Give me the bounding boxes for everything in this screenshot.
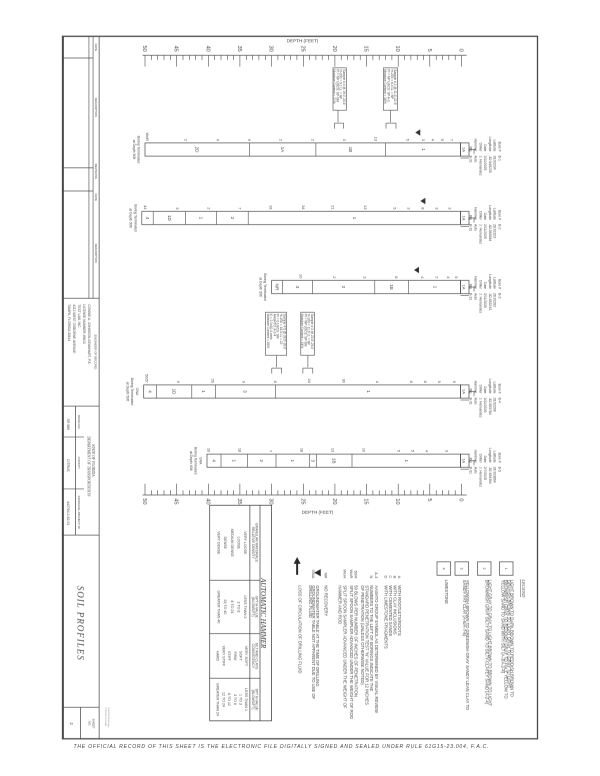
svg-text:3: 3 — [295, 286, 300, 289]
svg-text:DEPTH (FEET): DEPTH (FEET) — [302, 510, 334, 515]
svg-text:WoR: WoR — [349, 569, 354, 578]
svg-text:30: 30 — [268, 46, 274, 52]
svg-text:REVISIONS: REVISIONS — [94, 164, 98, 179]
svg-text:Longitude: Longitude — [488, 137, 492, 152]
svg-text:at Depth 50ft: at Depth 50ft — [126, 382, 130, 401]
svg-text:SOIL PROFILES: SOIL PROFILES — [76, 586, 86, 661]
svg-text:Date: Date — [483, 456, 487, 463]
svg-text:DRILLING FLUID: DRILLING FLUID — [308, 585, 313, 618]
svg-text:3: 3 — [460, 568, 464, 570]
svg-text:Hammer: Hammer — [474, 207, 478, 221]
svg-text:Longitude: Longitude — [488, 205, 492, 220]
svg-text:1D: 1D — [172, 389, 177, 396]
svg-text:28.92298: 28.92298 — [493, 398, 497, 412]
svg-text:4: 4 — [211, 459, 216, 462]
svg-text:DEPARTMENT OF TRANSPORTATION: DEPARTMENT OF TRANSPORTATION — [87, 435, 91, 497]
svg-text:2/21/2025 10:42 AM: 2/21/2025 10:42 AM — [104, 707, 107, 726]
svg-text:THE OFFICIAL RECORD OF THIS SH: THE OFFICIAL RECORD OF THIS SHEET IS THE… — [74, 744, 489, 750]
svg-text:VERY STIFF: VERY STIFF — [221, 646, 225, 667]
svg-text:SOFT: SOFT — [239, 651, 243, 661]
svg-text:Boring Terminated: Boring Terminated — [263, 273, 267, 301]
svg-text:5: 5 — [437, 381, 441, 383]
svg-text:8: 8 — [394, 276, 398, 278]
svg-text:1: 1 — [404, 459, 409, 462]
svg-text:1: 1 — [198, 217, 203, 220]
svg-text:NO.: NO. — [88, 721, 92, 727]
svg-text:Latitude: Latitude — [493, 139, 497, 151]
svg-text:2: 2 — [341, 286, 346, 289]
svg-text:1A: 1A — [461, 147, 466, 152]
svg-text:LESS THAN 1: LESS THAN 1 — [244, 688, 248, 711]
svg-text:Latitude: Latitude — [493, 451, 497, 463]
svg-text:CITRUS: CITRUS — [66, 459, 70, 472]
svg-text:Auto: Auto — [474, 398, 478, 405]
svg-text:7: 7 — [238, 207, 242, 209]
svg-text:NR: NR — [274, 284, 279, 291]
svg-text:AUTOMATIC HAMMER: AUTOMATIC HAMMER — [259, 577, 267, 649]
svg-text:Date: Date — [483, 386, 487, 393]
svg-text:4: 4 — [148, 390, 153, 393]
svg-text:Hammer: Hammer — [474, 381, 478, 395]
svg-text:5: 5 — [410, 450, 414, 452]
svg-text:OF PENETRATION (UNLESS OTHERWI: OF PENETRATION (UNLESS OTHERWISE NOTED) — [360, 585, 365, 685]
svg-text:J. Hernandez: J. Hernandez — [478, 293, 482, 313]
svg-text:3 TO 8: 3 TO 8 — [236, 601, 240, 612]
svg-text:BROWNISH GRAY SILTY SAND TO SI: BROWNISH GRAY SILTY SAND TO SILTY-CLAYEY… — [484, 580, 489, 705]
svg-text:3: 3 — [342, 139, 346, 141]
svg-text:5: 5 — [426, 498, 432, 501]
svg-text:B-1: B-1 — [498, 156, 502, 161]
svg-text:Date: Date — [483, 282, 487, 289]
svg-text:2: 2 — [310, 139, 314, 141]
svg-text:STIFF: STIFF — [227, 651, 231, 662]
svg-text:VERY LOOSE: VERY LOOSE — [243, 531, 247, 555]
svg-text:25: 25 — [299, 46, 305, 52]
svg-text:50: 50 — [141, 46, 147, 52]
svg-text:LESS THAN 3: LESS THAN 3 — [243, 595, 247, 618]
svg-text:30: 30 — [341, 379, 345, 383]
svg-text:2: 2 — [230, 217, 235, 220]
svg-text:-82.554354: -82.554354 — [488, 467, 492, 484]
svg-text:2/11/2025: 2/11/2025 — [483, 224, 487, 239]
svg-text:4: 4 — [145, 217, 150, 220]
svg-text:N: N — [369, 575, 374, 578]
svg-text:9: 9 — [176, 381, 180, 383]
svg-text:Auto: Auto — [474, 467, 478, 474]
svg-text:1: 1 — [421, 148, 426, 151]
svg-text:(BLOWS/FT): (BLOWS/FT) — [251, 597, 255, 617]
svg-text:VERY SOFT: VERY SOFT — [244, 646, 248, 667]
svg-text:5: 5 — [426, 49, 432, 52]
svg-text:TEST LAB, INC.: TEST LAB, INC. — [77, 304, 81, 328]
svg-text:2: 2 — [332, 276, 336, 278]
svg-text:WoH: WoH — [343, 569, 348, 578]
svg-text:Hammer: Hammer — [474, 276, 478, 290]
svg-text:RELATIVE DENSITY: RELATIVE DENSITY — [251, 527, 255, 560]
svg-text:8: 8 — [409, 381, 413, 383]
svg-text:Date: Date — [483, 144, 487, 151]
svg-text:1: 1 — [366, 390, 371, 393]
svg-text:Latitude: Latitude — [493, 381, 497, 393]
svg-text:Bore #: Bore # — [498, 279, 502, 289]
svg-text:8 TO 24: 8 TO 24 — [230, 600, 234, 613]
svg-text:4112 WEST OSBORNE AVENUE: 4112 WEST OSBORNE AVENUE — [72, 304, 76, 354]
svg-text:Rig: Rig — [469, 146, 473, 151]
svg-text:at Depth 50ft: at Depth 50ft — [132, 140, 136, 159]
svg-text:3 TO 6: 3 TO 6 — [233, 694, 237, 705]
svg-text:SOILPROFILE02.dgn: SOILPROFILE02.dgn — [107, 707, 109, 728]
svg-text:25: 25 — [299, 498, 305, 504]
svg-text:2/11/2025: 2/11/2025 — [483, 156, 487, 171]
svg-text:B-3: B-3 — [498, 293, 502, 298]
svg-text:35: 35 — [236, 46, 242, 52]
svg-text:Auto: Auto — [474, 224, 478, 231]
svg-text:20: 20 — [331, 46, 337, 52]
svg-text:34: 34 — [301, 205, 305, 209]
svg-text:13: 13 — [331, 448, 335, 452]
svg-text:12 TO 24: 12 TO 24 — [221, 692, 225, 707]
svg-text:1A: 1A — [461, 458, 466, 463]
svg-text:13: 13 — [374, 137, 378, 141]
svg-text:LIMESTONE: LIMESTONE — [444, 580, 449, 604]
svg-text:Moisture Content = 18%: Moisture Content = 18% — [383, 69, 387, 103]
svg-text:Latitude: Latitude — [493, 277, 497, 289]
svg-text:1 TO 3: 1 TO 3 — [239, 694, 243, 705]
svg-text:6 TO 12: 6 TO 12 — [227, 693, 231, 706]
svg-text:5: 5 — [405, 139, 409, 141]
svg-text:7: 7 — [450, 139, 454, 141]
svg-text:1: 1 — [432, 286, 437, 289]
svg-text:LEGEND: LEGEND — [521, 578, 526, 598]
svg-text:SANDY FAT CLAY (A-6/A-7-6): SANDY FAT CLAY (A-6/A-7-6) — [462, 580, 467, 637]
svg-text:24: 24 — [307, 379, 311, 383]
svg-text:50/5": 50/5" — [145, 374, 149, 383]
svg-text:3: 3 — [362, 276, 366, 278]
svg-text:3: 3 — [434, 207, 438, 209]
svg-text:Longitude: Longitude — [488, 379, 492, 394]
svg-text:50: 50 — [141, 498, 147, 504]
svg-text:Moisture Content = 26%: Moisture Content = 26% — [266, 314, 270, 348]
svg-text:10: 10 — [362, 448, 366, 452]
svg-text:2/11/2025: 2/11/2025 — [483, 398, 487, 413]
svg-text:VERY DENSE: VERY DENSE — [217, 531, 221, 555]
svg-text:9: 9 — [241, 381, 245, 383]
svg-text:3: 3 — [448, 207, 452, 209]
svg-text:Boring Terminated: Boring Terminated — [194, 447, 198, 475]
svg-text:18: 18 — [300, 448, 304, 452]
svg-text:1: 1 — [352, 217, 357, 220]
svg-text:SR 589: SR 589 — [66, 419, 70, 430]
svg-text:15: 15 — [363, 498, 369, 504]
svg-text:2: 2 — [259, 459, 264, 462]
svg-text:-82.553243: -82.553243 — [488, 293, 492, 310]
svg-text:21: 21 — [331, 205, 335, 209]
svg-text:SPLIT SPOON SAMPLER ADVANCED U: SPLIT SPOON SAMPLER ADVANCED UNDER THE W… — [343, 585, 348, 709]
svg-text:Bore #: Bore # — [498, 384, 502, 394]
svg-text:18: 18 — [238, 448, 242, 452]
svg-text:Driller: Driller — [478, 211, 482, 221]
svg-text:3: 3 — [407, 207, 411, 209]
svg-text:LOOSE: LOOSE — [236, 537, 240, 550]
svg-text:7: 7 — [269, 450, 273, 452]
svg-text:1D: 1D — [167, 215, 172, 222]
svg-text:LICENSE NUMBER 49613: LICENSE NUMBER 49613 — [82, 304, 86, 344]
svg-text:GNA: GNA — [199, 457, 203, 465]
svg-text:at Depth 30ft: at Depth 30ft — [259, 277, 263, 296]
svg-text:B-31: B-31 — [469, 156, 473, 163]
svg-text:HARD: HARD — [216, 651, 220, 662]
svg-text:J. Hernandez: J. Hernandez — [478, 224, 482, 244]
svg-text:ENGINEER OF RECORD:: ENGINEER OF RECORD: — [94, 335, 98, 371]
svg-text:Moisture Content = 21%: Moisture Content = 21% — [332, 69, 336, 103]
svg-text:45: 45 — [173, 46, 179, 52]
svg-text:SPLIT SPOON SAMPLER ADVANCED U: SPLIT SPOON SAMPLER ADVANCED UNDER THE W… — [349, 585, 354, 719]
svg-text:4: 4 — [424, 450, 428, 452]
svg-text:2: 2 — [184, 139, 188, 141]
svg-text:MEDIUM DENSE: MEDIUM DENSE — [230, 529, 234, 558]
svg-text:16: 16 — [207, 448, 211, 452]
svg-text:2/7/2025: 2/7/2025 — [483, 467, 487, 480]
svg-text:Rig: Rig — [469, 215, 473, 220]
svg-text:28.92282: 28.92282 — [493, 293, 497, 307]
svg-text:4: 4 — [431, 139, 435, 141]
svg-text:2: 2 — [482, 568, 486, 570]
svg-text:WoR: WoR — [145, 133, 149, 142]
svg-text:HAMMER AND ROD: HAMMER AND ROD — [337, 585, 342, 624]
svg-text:8: 8 — [423, 381, 427, 383]
svg-text:Date: Date — [483, 213, 487, 220]
svg-text:1A: 1A — [461, 216, 466, 221]
svg-text:40: 40 — [204, 498, 210, 504]
svg-text:0: 0 — [458, 49, 464, 52]
svg-text:30: 30 — [268, 498, 274, 504]
svg-text:DATE: DATE — [94, 44, 98, 51]
svg-text:28.92234: 28.92234 — [493, 156, 497, 170]
svg-text:5: 5 — [393, 207, 397, 209]
svg-text:28.923664: 28.923664 — [493, 467, 497, 483]
svg-text:1B: 1B — [389, 284, 394, 290]
svg-text:Boring Terminated: Boring Terminated — [133, 204, 137, 232]
svg-text:-82.549225: -82.549225 — [488, 156, 492, 173]
svg-text:J. Hernandez: J. Hernandez — [478, 398, 482, 418]
svg-text:35: 35 — [236, 498, 242, 504]
svg-text:Longitude: Longitude — [488, 448, 492, 463]
svg-text:3: 3 — [421, 139, 425, 141]
svg-text:1A: 1A — [461, 389, 466, 394]
svg-text:3: 3 — [445, 450, 449, 452]
svg-text:1: 1 — [201, 390, 206, 393]
svg-text:5: 5 — [440, 139, 444, 141]
svg-text:Driller: Driller — [478, 143, 482, 153]
svg-text:at Depth 50ft: at Depth 50ft — [129, 208, 133, 227]
svg-text:1A: 1A — [280, 147, 285, 154]
svg-text:Bore #: Bore # — [498, 453, 502, 463]
svg-text:28.92323: 28.92323 — [493, 224, 497, 238]
svg-text:Driller: Driller — [478, 385, 482, 395]
svg-text:20: 20 — [331, 498, 337, 504]
svg-text:Bore #: Bore # — [498, 210, 502, 220]
svg-text:2: 2 — [279, 139, 283, 141]
svg-text:Auto: Auto — [474, 293, 478, 300]
svg-text:8: 8 — [421, 207, 425, 209]
svg-text:1: 1 — [232, 459, 237, 462]
svg-text:1A: 1A — [461, 285, 466, 290]
svg-text:-82.550584: -82.550584 — [488, 224, 492, 241]
svg-text:4: 4 — [446, 276, 450, 278]
svg-text:Rig: Rig — [469, 284, 473, 289]
svg-text:NR: NR — [324, 573, 329, 579]
svg-text:26: 26 — [210, 379, 214, 383]
svg-text:Driller: Driller — [478, 280, 482, 290]
svg-text:DESCRIPTION: DESCRIPTION — [94, 244, 98, 263]
svg-text:10: 10 — [298, 274, 302, 278]
svg-text:1B: 1B — [332, 458, 337, 464]
svg-text:YELLOW SAND TO SAND WITH SILT: YELLOW SAND TO SAND WITH SILT (A-3/A-2-4… — [500, 580, 505, 674]
svg-text:40: 40 — [204, 46, 210, 52]
svg-text:FIRM: FIRM — [233, 652, 237, 661]
svg-text:NO RECOVERY: NO RECOVERY — [324, 585, 329, 616]
svg-text:2: 2 — [434, 276, 438, 278]
svg-text:Auto: Auto — [474, 156, 478, 163]
svg-text:DATE: DATE — [94, 194, 98, 201]
svg-text:3: 3 — [243, 390, 248, 393]
svg-text:LOSS OF CIRCULATION OF DRILLIN: LOSS OF CIRCULATION OF DRILLING FLUID — [297, 585, 302, 673]
svg-text:442764-2-52-01: 442764-2-52-01 — [66, 501, 70, 525]
svg-text:1: 1 — [290, 459, 295, 462]
svg-text:Rig: Rig — [469, 458, 473, 463]
svg-text:GNA: GNA — [311, 570, 316, 579]
svg-text:Latitude: Latitude — [493, 208, 497, 220]
svg-text:COUNTY: COUNTY — [77, 457, 81, 469]
svg-text:13: 13 — [363, 205, 367, 209]
svg-text:B-31: B-31 — [469, 467, 473, 474]
svg-text:10: 10 — [394, 46, 400, 52]
svg-text:GREATER THAN 24: GREATER THAN 24 — [216, 683, 220, 716]
svg-text:Driller: Driller — [478, 454, 482, 464]
svg-text:D: D — [383, 575, 388, 578]
svg-text:B-31: B-31 — [469, 224, 473, 231]
svg-text:-82.553784: -82.553784 — [488, 398, 492, 415]
svg-text:Rig: Rig — [469, 388, 473, 393]
svg-text:2D: 2D — [195, 147, 200, 154]
svg-text:2: 2 — [207, 207, 211, 209]
svg-text:16: 16 — [269, 205, 273, 209]
svg-text:B-2: B-2 — [498, 224, 502, 229]
svg-text:10: 10 — [394, 498, 400, 504]
svg-text:B-31: B-31 — [469, 293, 473, 300]
svg-text:TAMPA, FLORIDA 33614: TAMPA, FLORIDA 33614 — [67, 304, 71, 341]
svg-text:Boring Terminated: Boring Terminated — [130, 378, 134, 406]
svg-text:0: 0 — [458, 498, 464, 501]
svg-text:J. Hernandez: J. Hernandez — [478, 156, 482, 176]
svg-text:Longitude: Longitude — [488, 274, 492, 289]
svg-text:4: 4 — [420, 276, 424, 278]
svg-text:15: 15 — [363, 46, 369, 52]
svg-text:Bore #: Bore # — [498, 142, 502, 152]
svg-text:Hammer: Hammer — [474, 450, 478, 464]
svg-text:3: 3 — [175, 207, 179, 209]
svg-text:ROAD NO.: ROAD NO. — [77, 415, 81, 429]
svg-text:DEPTH (FEET): DEPTH (FEET) — [287, 38, 319, 43]
svg-text:B-5: B-5 — [498, 467, 502, 472]
svg-text:CONSISTENCY: CONSISTENCY — [251, 644, 255, 669]
svg-text:45: 45 — [173, 498, 179, 504]
svg-text:24 TO 40: 24 TO 40 — [223, 599, 227, 614]
svg-text:WITH LIMESTONE FRAGMENTS: WITH LIMESTONE FRAGMENTS — [383, 585, 388, 649]
svg-text:DESCRIPTION: DESCRIPTION — [94, 98, 98, 117]
svg-text:5: 5 — [454, 276, 458, 278]
svg-text:3: 3 — [311, 459, 316, 462]
svg-text:5: 5 — [396, 450, 400, 452]
svg-text:8: 8 — [273, 381, 277, 383]
svg-text:CONNIE A. JOHNSON-GEANHART, P.: CONNIE A. JOHNSON-GEANHART, P.E. — [87, 304, 91, 364]
svg-text:GREATER THAN 40: GREATER THAN 40 — [217, 590, 221, 623]
svg-text:B-4: B-4 — [498, 398, 502, 403]
svg-text:9: 9 — [247, 139, 251, 141]
svg-text:DENSE: DENSE — [223, 537, 227, 550]
svg-text:Boring Terminated: Boring Terminated — [137, 136, 141, 164]
svg-text:J. Hernandez: J. Hernandez — [478, 467, 482, 487]
svg-text:2/11/2025: 2/11/2025 — [483, 293, 487, 308]
svg-text:at Depth 40ft: at Depth 40ft — [189, 451, 193, 470]
svg-text:FINANCIAL PROJECT ID: FINANCIAL PROJECT ID — [77, 496, 81, 529]
svg-text:1: 1 — [504, 568, 508, 570]
svg-text:Moisture Content = 24%: Moisture Content = 24% — [300, 314, 304, 348]
svg-text:4: 4 — [215, 139, 219, 141]
svg-text:B-31: B-31 — [469, 398, 473, 405]
svg-text:4: 4 — [375, 381, 379, 383]
svg-text:1B: 1B — [348, 147, 353, 153]
svg-text:GNA: GNA — [135, 388, 139, 396]
svg-text:4: 4 — [442, 568, 446, 570]
svg-text:44: 44 — [143, 205, 147, 209]
svg-text:(BLOWS/FT): (BLOWS/FT) — [251, 690, 255, 710]
svg-text:5: 5 — [452, 381, 456, 383]
svg-text:Hammer: Hammer — [474, 139, 478, 153]
